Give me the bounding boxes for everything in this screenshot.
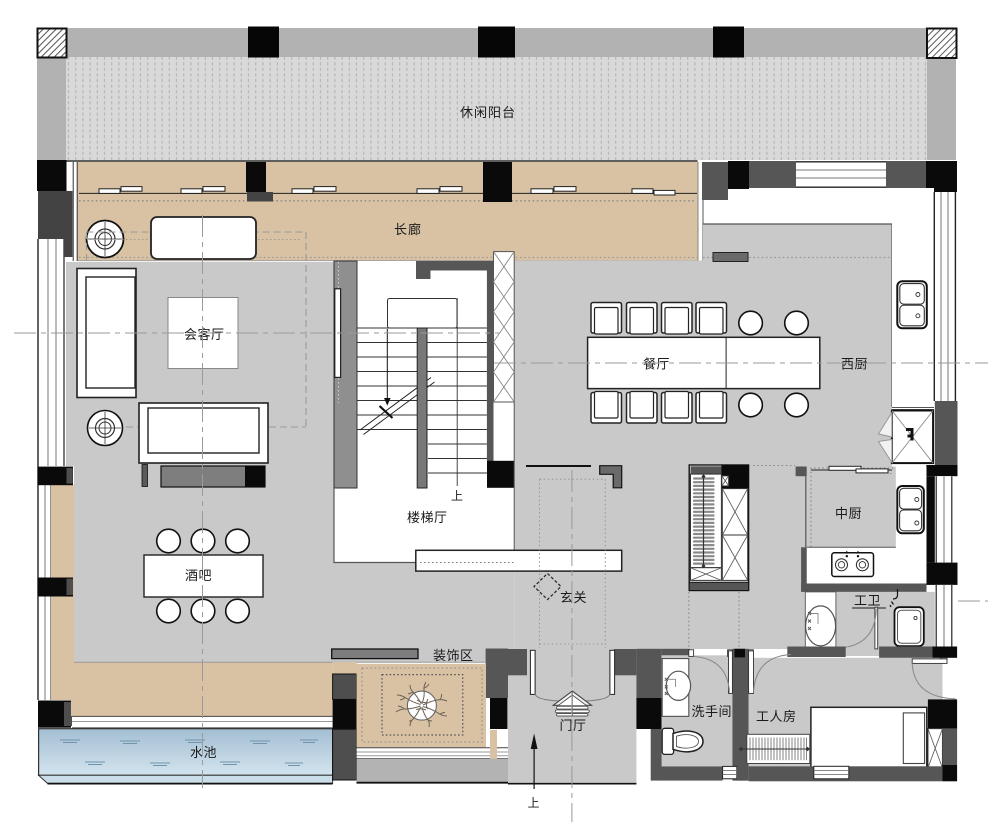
svg-text:玄关: 玄关 <box>560 590 587 605</box>
svg-text:工卫: 工卫 <box>854 593 881 608</box>
svg-text:洗手间: 洗手间 <box>692 704 733 719</box>
svg-text:会客厅: 会客厅 <box>184 327 225 342</box>
svg-text:楼梯厅: 楼梯厅 <box>407 510 448 525</box>
svg-text:休闲阳台: 休闲阳台 <box>460 105 516 120</box>
svg-text:西厨: 西厨 <box>841 357 868 372</box>
svg-text:装饰区: 装饰区 <box>433 648 474 663</box>
svg-text:中厨: 中厨 <box>835 506 862 521</box>
svg-text:长廊: 长廊 <box>394 222 422 237</box>
svg-text:餐厅: 餐厅 <box>643 357 670 372</box>
svg-text:工人房: 工人房 <box>756 709 797 724</box>
svg-text:水池: 水池 <box>190 745 217 760</box>
svg-text:上: 上 <box>528 796 540 810</box>
svg-text:上: 上 <box>451 489 463 503</box>
svg-text:门厅: 门厅 <box>560 718 587 733</box>
svg-text:酒吧: 酒吧 <box>185 568 212 583</box>
